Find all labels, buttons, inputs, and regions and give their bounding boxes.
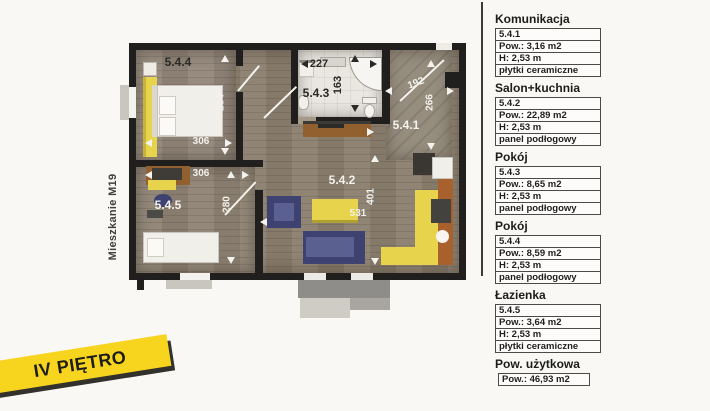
dim-arrow	[145, 171, 152, 179]
wall-segment	[445, 72, 459, 88]
dim-arrow	[351, 105, 359, 112]
dim-label: 401	[366, 182, 377, 212]
window-left	[129, 87, 136, 118]
dim-arrow	[260, 218, 267, 226]
dim-label: 531	[338, 208, 378, 219]
legend-row: H: 2,53 m	[496, 52, 600, 64]
sofa-seat	[306, 237, 354, 257]
legend-section: Łazienka 5.4.5 Pow.: 3,64 m2 H: 2,53 m p…	[495, 288, 613, 353]
legend-section-title: Pokój	[495, 150, 613, 164]
legend-row: H: 2,53 m	[496, 328, 600, 340]
window-bottom	[180, 273, 210, 280]
dim-arrow	[367, 128, 374, 136]
pillow	[147, 238, 164, 257]
window-sill	[120, 85, 129, 120]
legend-section: Pokój 5.4.4 Pow.: 8,59 m2 H: 2,53 m pane…	[495, 219, 613, 284]
legend-box: 5.4.3 Pow.: 8,65 m2 H: 2,53 m panel podł…	[495, 166, 601, 215]
tv	[318, 124, 344, 128]
dim-arrow	[371, 155, 379, 162]
legend-section-title: Pow. użytkowa	[495, 357, 613, 371]
dim-label: 227	[296, 58, 342, 70]
wall-segment	[236, 50, 243, 66]
legend-row: Pow.: 8,59 m2	[496, 247, 600, 259]
hall-floor	[386, 50, 452, 160]
pillow	[159, 96, 176, 115]
floor-level-banner: IV PIĘTRO	[0, 334, 171, 394]
legend-row: H: 2,53 m	[496, 190, 600, 202]
kitchen-sink	[436, 230, 449, 243]
floor-level-text: IV PIĘTRO	[32, 346, 128, 381]
room-label-545: 5.4.5	[146, 198, 190, 212]
room-label-543: 5.4.3	[296, 86, 336, 100]
wall-segment	[255, 190, 263, 273]
legend-section-title: Pokój	[495, 219, 613, 233]
dim-label: 306	[178, 168, 224, 179]
legend-section: Komunikacja 5.4.1 Pow.: 3,16 m2 H: 2,53 …	[495, 12, 613, 77]
legend-section-title: Łazienka	[495, 288, 613, 302]
legend-box: 5.4.2 Pow.: 22,89 m2 H: 2,53 m panel pod…	[495, 97, 601, 146]
wall-segment	[236, 92, 243, 160]
dim-arrow	[370, 60, 377, 68]
legend-row: Pow.: 22,89 m2	[496, 109, 600, 121]
dim-arrow	[227, 257, 235, 264]
room-label-542: 5.4.2	[318, 173, 366, 187]
separator-line	[481, 2, 483, 276]
dim-arrow	[242, 171, 249, 179]
legend-box: Pow.: 46,93 m2	[498, 373, 590, 386]
dim-arrow	[351, 55, 359, 62]
dim-label: 306	[178, 136, 224, 147]
armchair-seat	[274, 203, 294, 221]
balcony-step	[350, 298, 390, 310]
legend-box: 5.4.1 Pow.: 3,16 m2 H: 2,53 m płytki cer…	[495, 28, 601, 77]
toilet	[364, 104, 375, 118]
legend-row: 5.4.1	[496, 29, 600, 40]
pillow	[159, 117, 176, 136]
balcony-step	[300, 298, 350, 318]
apartment-side-label: Mieszkanie M19	[107, 142, 119, 292]
legend-row: H: 2,53 m	[496, 121, 600, 133]
legend-row: H: 2,53 m	[496, 259, 600, 271]
dim-label: 266	[425, 88, 436, 118]
entrance-threshold	[436, 43, 452, 50]
legend-row: 5.4.4	[496, 236, 600, 247]
balcony-door	[304, 273, 326, 280]
legend-row: panel podłogowy	[496, 202, 600, 214]
toilet-tank	[362, 97, 377, 104]
dim-arrow	[221, 148, 229, 155]
balcony-door	[351, 273, 373, 280]
dim-arrow	[225, 139, 232, 147]
legend-section: Salon+kuchnia 5.4.2 Pow.: 22,89 m2 H: 2,…	[495, 81, 613, 146]
legend-section: Pow. użytkowa Pow.: 46,93 m2	[495, 357, 613, 386]
legend-row: panel podłogowy	[496, 133, 600, 145]
fridge	[432, 157, 453, 179]
legend-row: 5.4.5	[496, 305, 600, 316]
dim-label: 280	[222, 190, 233, 220]
legend-row: Pow.: 46,93 m2	[499, 374, 589, 385]
page: 306 284 306 280 227 163 192 266 401 531 …	[0, 0, 710, 411]
dim-arrow	[227, 171, 235, 178]
legend-row: płytki ceramiczne	[496, 64, 600, 76]
floor-plan: 306 284 306 280 227 163 192 266 401 531 …	[129, 43, 466, 280]
wall-stub	[137, 278, 144, 290]
cabinet	[143, 62, 157, 76]
dim-arrow	[427, 143, 435, 150]
legend-box: 5.4.5 Pow.: 3,64 m2 H: 2,53 m płytki cer…	[495, 304, 601, 353]
legend-row: Pow.: 3,64 m2	[496, 316, 600, 328]
dim-arrow	[371, 258, 379, 265]
legend-row: Pow.: 3,16 m2	[496, 40, 600, 52]
dim-arrow	[447, 87, 454, 95]
legend-row: panel podłogowy	[496, 271, 600, 283]
legend-section: Pokój 5.4.3 Pow.: 8,65 m2 H: 2,53 m pane…	[495, 150, 613, 215]
room-label-541: 5.4.1	[384, 118, 428, 132]
balcony	[298, 280, 390, 298]
legend-row: 5.4.2	[496, 98, 600, 109]
cooktop	[431, 199, 451, 223]
legend-panel: Komunikacja 5.4.1 Pow.: 3,16 m2 H: 2,53 …	[495, 12, 613, 390]
legend-row: Pow.: 8,65 m2	[496, 178, 600, 190]
legend-row: 5.4.3	[496, 167, 600, 178]
room-label-544: 5.4.4	[158, 55, 198, 69]
dim-arrow	[427, 60, 435, 67]
dim-arrow	[145, 139, 152, 147]
window-sill	[166, 280, 212, 289]
desk-cabinet	[148, 180, 176, 190]
legend-section-title: Salon+kuchnia	[495, 81, 613, 95]
legend-row: płytki ceramiczne	[496, 340, 600, 352]
legend-section-title: Komunikacja	[495, 12, 613, 26]
legend-box: 5.4.4 Pow.: 8,59 m2 H: 2,53 m panel podł…	[495, 235, 601, 284]
dim-arrow	[385, 87, 392, 95]
dim-label: 284	[216, 88, 227, 118]
dim-arrow	[221, 55, 229, 62]
